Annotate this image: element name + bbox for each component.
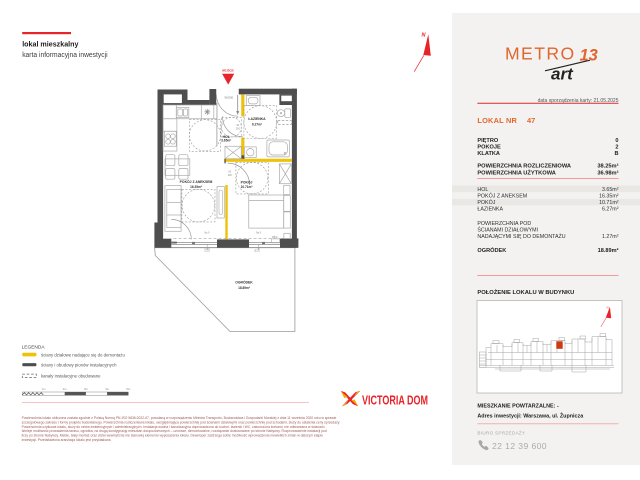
svg-text:karta informacyjna inwestycji: karta informacyjna inwestycji	[22, 50, 108, 59]
svg-text:18.89m²: 18.89m²	[598, 247, 619, 254]
svg-text:Adres inwestycji: Warszawa, ul: Adres inwestycji: Warszawa, ul. Żupnicza	[477, 413, 584, 420]
svg-text:lokal mieszkalny: lokal mieszkalny	[22, 40, 79, 49]
svg-text:POWIERZCHNIA ROZLICZENIOWA: POWIERZCHNIA ROZLICZENIOWA	[477, 163, 571, 169]
svg-text:ściany działowe nadające się d: ściany działowe nadające się do demontaż…	[41, 353, 125, 358]
svg-text:NADAJĄCYMI SIĘ DO DEMONTAŻU: NADAJĄCYMI SIĘ DO DEMONTAŻU	[477, 233, 565, 240]
svg-text:PIĘTRO: PIĘTRO	[477, 138, 498, 144]
svg-text:Np 9: Np 9	[256, 231, 262, 234]
svg-text:2: 2	[615, 144, 618, 150]
svg-text:10.71m²: 10.71m²	[241, 185, 253, 189]
svg-text:POŁOŻENIE LOKALU W BUDYNKU: POŁOŻENIE LOKALU W BUDYNKU	[477, 289, 574, 296]
svg-text:POKÓJ: POKÓJ	[241, 179, 253, 184]
svg-text:POKÓJ Z ANEKSEM: POKÓJ Z ANEKSEM	[180, 179, 213, 184]
svg-text:90/200: 90/200	[224, 95, 233, 99]
svg-text:0: 0	[615, 138, 618, 144]
svg-text:Powierzchnia użytkowa lokalu,: Powierzchnia użytkowa lokalu, służy do c…	[22, 425, 326, 429]
svg-text:POKÓJ Z ANEKSEM: POKÓJ Z ANEKSEM	[477, 192, 527, 199]
svg-text:ŚCIANAMI DZIAŁOWYMI: ŚCIANAMI DZIAŁOWYMI	[477, 225, 538, 233]
svg-text:6.27m²: 6.27m²	[602, 206, 619, 212]
svg-text:POWIERZCHNIA POD: POWIERZCHNIA POD	[477, 221, 531, 227]
svg-text:Istnieje możliwość prowadzenia: Istnieje możliwość prowadzenia tarasu, o…	[22, 429, 327, 433]
svg-text:liczy po stronie Nabywcy. Mebl: liczy po stronie Nabywcy. Meble, biały m…	[22, 434, 324, 438]
svg-text:47: 47	[527, 116, 535, 125]
svg-text:250: 250	[258, 247, 261, 252]
svg-text:16.35m²: 16.35m²	[190, 185, 202, 189]
svg-text:ŁAZIENKA: ŁAZIENKA	[248, 117, 266, 121]
svg-text:art: art	[551, 65, 574, 84]
svg-text:5m: 5m	[126, 387, 131, 391]
svg-text:250: 250	[208, 247, 211, 252]
svg-text:6.27m²: 6.27m²	[252, 122, 262, 126]
svg-text:POKOJE: POKOJE	[477, 144, 501, 150]
svg-text:OGRÓDEK: OGRÓDEK	[235, 280, 253, 285]
svg-text:13: 13	[580, 47, 598, 65]
svg-text:38.25m²: 38.25m²	[597, 162, 618, 169]
svg-text:VICTORIA DOM: VICTORIA DOM	[362, 393, 428, 408]
svg-text:Powierzchnia lokalu obliczona: Powierzchnia lokalu obliczona została zg…	[22, 416, 337, 420]
svg-text:36.98m²: 36.98m²	[597, 169, 618, 176]
svg-text:B: B	[614, 151, 618, 157]
svg-text:22 12 39 600: 22 12 39 600	[492, 441, 547, 451]
svg-text:KLATKA: KLATKA	[477, 151, 500, 157]
svg-text:200: 200	[236, 128, 241, 131]
svg-text:WEJŚCIE: WEJŚCIE	[222, 67, 234, 72]
svg-text:LEGENDA: LEGENDA	[22, 345, 46, 351]
svg-text:METRO: METRO	[505, 44, 576, 64]
svg-text:200: 200	[228, 174, 233, 177]
svg-text:18.89m²: 18.89m²	[238, 286, 250, 290]
svg-text:POWIERZCHNIA UŻYTKOWA: POWIERZCHNIA UŻYTKOWA	[477, 169, 555, 176]
svg-text:16.35m²: 16.35m²	[599, 193, 619, 199]
svg-text:MIESZKANIE POWTARZALNE: -: MIESZKANIE POWTARZALNE: -	[477, 404, 559, 410]
svg-text:OŚ b: OŚ b	[272, 236, 278, 239]
svg-text:1m: 1m	[42, 387, 47, 391]
svg-text:LOKAL NR: LOKAL NR	[477, 116, 517, 125]
svg-text:3.65m²: 3.65m²	[602, 187, 619, 193]
svg-text:ściany i obudowy pionów instal: ściany i obudowy pionów instalacyjnych	[41, 363, 117, 368]
svg-text:2m: 2m	[63, 387, 68, 391]
svg-text:1.27m²: 1.27m²	[602, 234, 619, 240]
svg-text:POKÓJ: POKÓJ	[477, 199, 495, 206]
svg-text:ŁAZIENKA: ŁAZIENKA	[477, 206, 503, 212]
svg-text:kanały instalacyjne obudowane: kanały instalacyjne obudowane	[41, 374, 101, 379]
svg-text:BIURO SPRZEDAŻY: BIURO SPRZEDAŻY	[477, 430, 525, 436]
svg-text:10.71m²: 10.71m²	[599, 200, 619, 206]
svg-text:szczegółowego zakresu i formy: szczegółowego zakresu i formy projektu b…	[22, 420, 341, 424]
svg-text:OGRÓDEK: OGRÓDEK	[477, 246, 506, 254]
svg-text:N: N	[422, 33, 427, 39]
svg-text:inwestycji. Przedstawiona aran: inwestycji. Przedstawiona aranżacja loka…	[22, 438, 112, 442]
svg-text:3m: 3m	[84, 387, 89, 391]
svg-text:Np 9: Np 9	[204, 231, 210, 234]
svg-text:3.65m²: 3.65m²	[221, 139, 231, 143]
svg-text:HOL: HOL	[477, 187, 488, 193]
svg-text:4m: 4m	[105, 387, 110, 391]
